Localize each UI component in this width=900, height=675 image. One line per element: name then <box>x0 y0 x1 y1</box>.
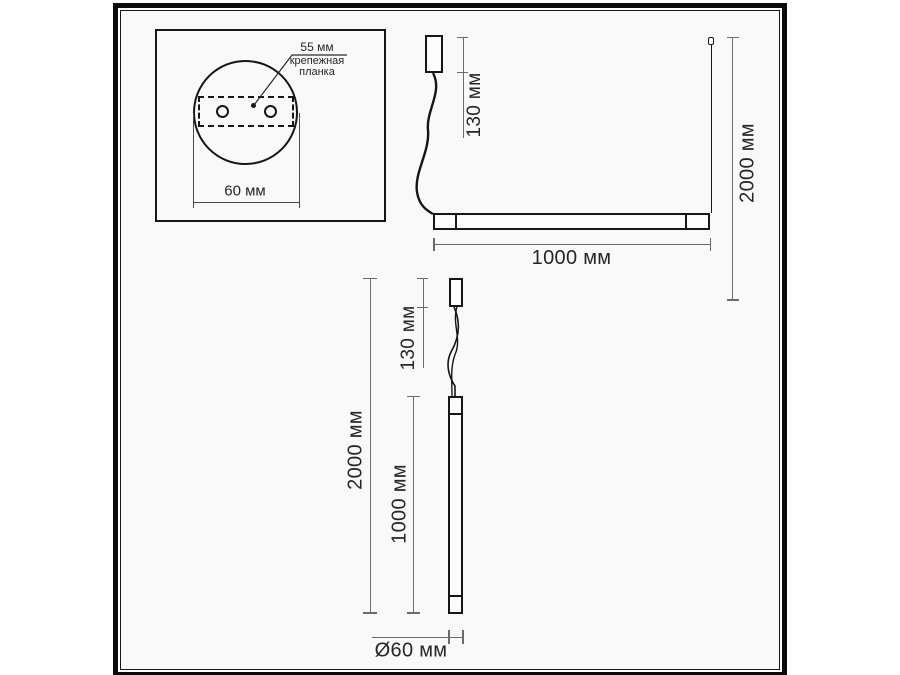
v-suspension-dim-line <box>370 278 371 613</box>
v-suspension-tick-top <box>363 278 377 280</box>
mount-hole-left <box>216 105 229 118</box>
mount-plate-label-line2: планка <box>299 66 335 78</box>
ext-line-left <box>193 113 194 208</box>
vertical-light-tube <box>448 396 463 614</box>
bar-endcap-left-divider <box>455 213 457 230</box>
mount-plate-label: крепежная планка <box>290 56 345 77</box>
wire-connector <box>708 37 714 45</box>
dimension-drawing: 55 мм крепежная планка 60 мм 130 мм 2000… <box>0 0 900 675</box>
v-length-dim-line <box>413 396 414 613</box>
v-diameter-tick-right <box>462 630 464 644</box>
hole-spacing-label: 55 мм <box>300 40 333 54</box>
tube-bottomcap-divider <box>448 595 463 597</box>
h-length-dim-line <box>434 244 710 245</box>
ext-line-right <box>299 113 300 208</box>
v-canopy-drop-label: 130 мм <box>398 306 420 371</box>
v-diameter-tick-left <box>448 630 450 644</box>
mounting-plate-dashed-rect <box>198 96 294 127</box>
h-suspension-dim-line <box>732 37 733 300</box>
v-suspension-label: 2000 мм <box>345 410 368 490</box>
h-suspension-tick-top <box>727 37 739 39</box>
vertical-canopy <box>449 278 463 307</box>
v-diameter-dim-line <box>372 637 464 638</box>
mount-hole-right <box>264 105 277 118</box>
horizontal-canopy <box>425 35 443 73</box>
v-suspension-tick-bottom <box>363 612 377 614</box>
v-diameter-label: Ø60 мм <box>375 640 448 663</box>
v-length-tick-top <box>407 396 420 398</box>
h-canopy-drop-tick-top <box>457 37 468 39</box>
horizontal-light-bar <box>433 213 710 230</box>
tube-topcap-divider <box>448 413 463 415</box>
h-suspension-label: 2000 мм <box>737 123 760 203</box>
base-width-dim-line <box>193 202 299 203</box>
v-canopy-drop-tick-top <box>417 278 428 280</box>
v-length-label: 1000 мм <box>389 464 412 544</box>
h-suspension-tick-bottom <box>727 299 739 301</box>
v-canopy-drop-dim-line <box>423 278 424 368</box>
v-length-tick-bottom <box>407 612 420 614</box>
horizontal-fixture-wire <box>711 45 713 213</box>
base-width-label: 60 мм <box>224 183 265 200</box>
bar-endcap-right-divider <box>685 213 687 230</box>
leader-anchor-dot <box>251 103 256 108</box>
h-length-label: 1000 мм <box>433 247 710 270</box>
h-canopy-drop-label: 130 мм <box>464 73 486 138</box>
